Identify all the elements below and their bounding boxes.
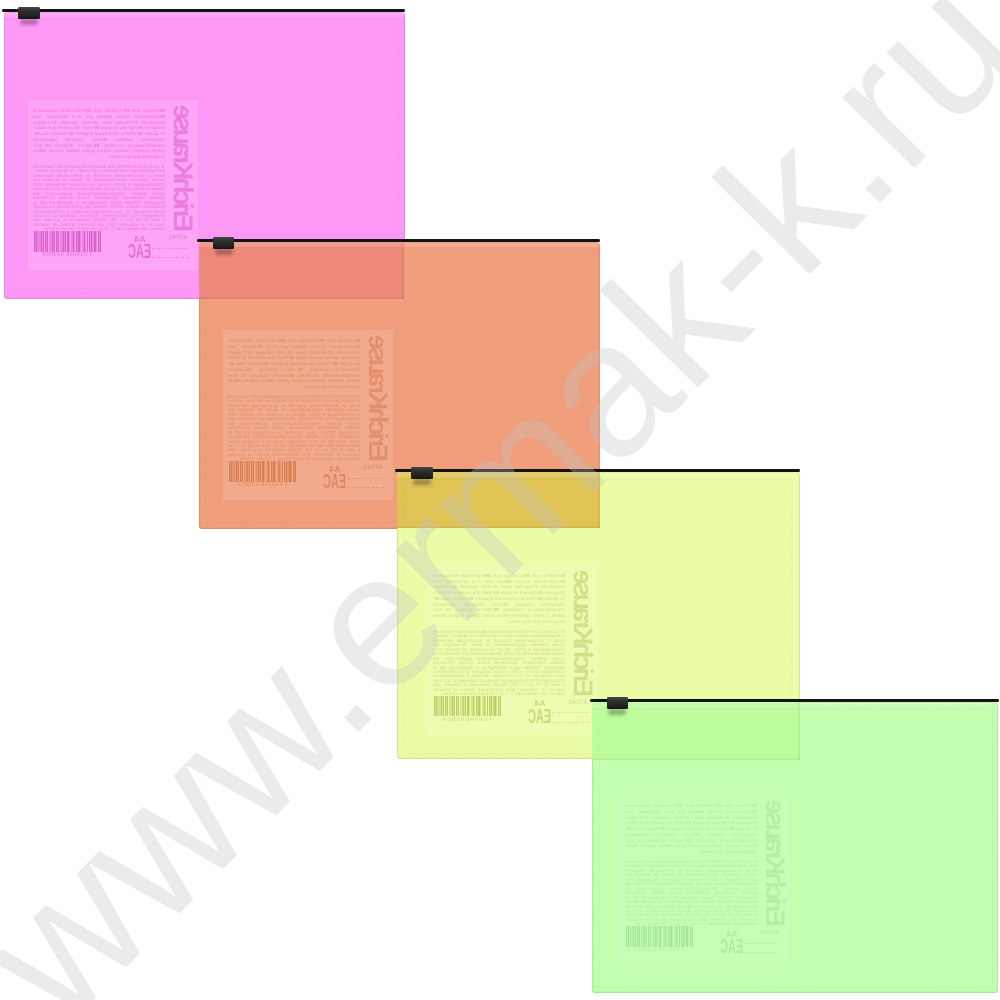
svg-text:www.ermak-k.ru: www.ermak-k.ru	[0, 0, 1000, 1000]
